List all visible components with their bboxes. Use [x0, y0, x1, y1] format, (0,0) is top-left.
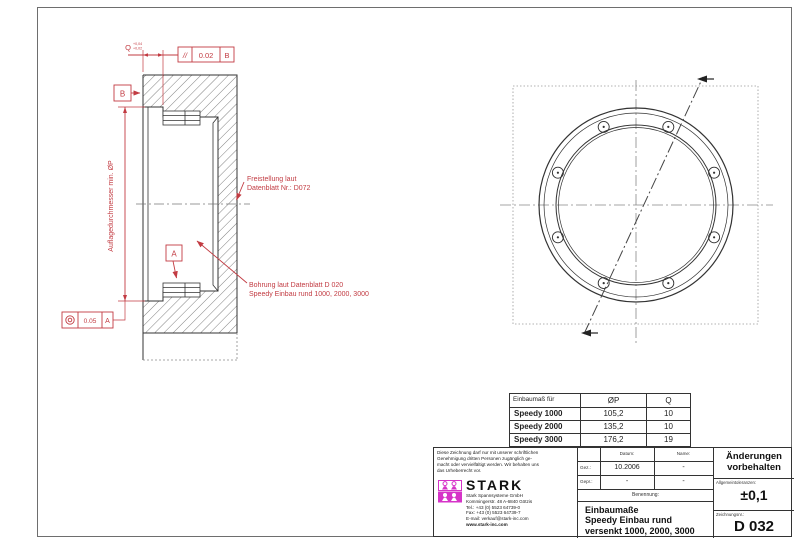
- stark-logo-icon: [438, 480, 462, 503]
- tolerances-label: Allgemeintoleranzen:: [716, 480, 756, 485]
- gepr-name-value: -: [654, 478, 713, 485]
- drawing-title-line3: versenkt 1000, 2000, 3000: [585, 526, 695, 536]
- datum-b-label: B: [120, 90, 125, 99]
- drawing-title: Einbaumaße Speedy Einbau rund versenkt 1…: [585, 505, 695, 536]
- company-cell: Diese Zeichnung darf nur mit unserer sch…: [434, 448, 578, 538]
- table-row-speedy1000-name: Speedy 1000: [510, 407, 580, 420]
- table-row-speedy3000-p: 176,2: [580, 433, 646, 446]
- gez-name-value: -: [654, 464, 713, 471]
- dimension-table: Einbaumaß für ØP Q Speedy 1000 105,2 10 …: [509, 393, 691, 447]
- drawing-title-line1: Einbaumaße: [585, 505, 695, 515]
- drawing-number: D 032: [714, 518, 794, 535]
- right-cell: Änderungen vorbehalten Allgemeintoleranz…: [713, 448, 793, 538]
- hidden-plate-continuation: [143, 333, 237, 360]
- q-dim-label: Q: [125, 43, 131, 52]
- q-tol-lower: +0,02: [133, 47, 142, 51]
- aenderungen-line2: vorbehalten: [714, 463, 794, 474]
- table-row-speedy3000-q: 19: [646, 433, 690, 446]
- table-header-einbaumass: Einbaumaß für: [510, 394, 580, 407]
- table-header-p: ØP: [580, 394, 646, 407]
- table-row-speedy2000-q: 10: [646, 420, 690, 433]
- company-name: Stark Spannsysteme GmbH: [466, 493, 532, 499]
- company-address: Stark Spannsysteme GmbH Kommingerstr. 48…: [466, 493, 532, 528]
- tolerances-value: ±0,1: [714, 487, 794, 503]
- diameter-dim-label: Auflagedurchmesser min. ØP: [108, 160, 115, 252]
- groove-slot-top: [163, 111, 200, 125]
- gez-label: Gez.:: [580, 465, 591, 470]
- drawing-number-label: Zeichnungsnr.:: [716, 512, 744, 517]
- note-freistellung-line2: Datenblatt Nr.: D072: [247, 185, 311, 192]
- table-row-speedy2000-p: 135,2: [580, 420, 646, 433]
- table-row-speedy1000-q: 10: [646, 407, 690, 420]
- gepr-datum-value: -: [600, 478, 654, 485]
- concentricity-value: 0.05: [84, 318, 97, 325]
- q-tol-upper: +0,04: [133, 42, 142, 46]
- front-view: [500, 76, 773, 346]
- company-street: Kommingerstr. 48 A-6840 Götzis: [466, 499, 532, 505]
- aenderungen-note: Änderungen vorbehalten: [714, 452, 794, 474]
- copyright-text: Diese Zeichnung darf nur mit unserer sch…: [437, 450, 574, 474]
- table-row-speedy3000-name: Speedy 3000: [510, 433, 580, 446]
- datum-a-label: A: [171, 250, 177, 259]
- concentricity-datum: A: [105, 318, 110, 325]
- company-web: www.stark-inc.com: [466, 522, 532, 528]
- note-bohrung-line2: Speedy Einbau rund 1000, 2000, 3000: [249, 291, 369, 298]
- fields-cell: Datum: Name: Gez.: 10.2006 - Gepr.: - - …: [578, 448, 713, 538]
- datum-b: B: [114, 85, 140, 101]
- table-header-q: Q: [646, 394, 690, 407]
- drawing-title-line2: Speedy Einbau rund: [585, 515, 695, 525]
- name-header: Name:: [654, 451, 713, 456]
- copyright-line4: das Urheberrecht vor.: [437, 468, 574, 474]
- table-row-speedy1000-p: 105,2: [580, 407, 646, 420]
- concentricity-icon: [66, 316, 74, 324]
- diameter-dimension: Auflagedurchmesser min. ØP: [108, 107, 145, 320]
- concentricity-frame: 0.05 A: [62, 312, 113, 328]
- drawing-sheet: Q +0,04 +0,02 // 0.02 B B: [0, 0, 800, 544]
- parallelism-symbol: //: [182, 51, 188, 60]
- parallelism-value: 0.02: [199, 51, 214, 60]
- section-view: [136, 75, 250, 360]
- title-block: Diese Zeichnung darf nur mit unserer sch…: [433, 447, 792, 537]
- parallelism-frame: // 0.02 B: [178, 47, 234, 62]
- note-freistellung-line1: Freistellung laut: [247, 176, 296, 183]
- groove-slot-bottom: [163, 283, 200, 297]
- datum-header: Datum:: [600, 451, 654, 456]
- parallelism-datum: B: [224, 51, 229, 60]
- stark-logo-text: STARK: [466, 477, 523, 493]
- gez-datum-value: 10.2006: [600, 464, 654, 471]
- note-freistellung: Freistellung laut Datenblatt Nr.: D072: [237, 176, 311, 200]
- front-centerlines: [500, 80, 773, 345]
- note-bohrung-line1: Bohrung laut Datenblatt D 020: [249, 282, 343, 289]
- gepr-label: Gepr.:: [580, 479, 593, 484]
- benennung-label: Benennung:: [578, 492, 713, 498]
- table-row-speedy2000-name: Speedy 2000: [510, 420, 580, 433]
